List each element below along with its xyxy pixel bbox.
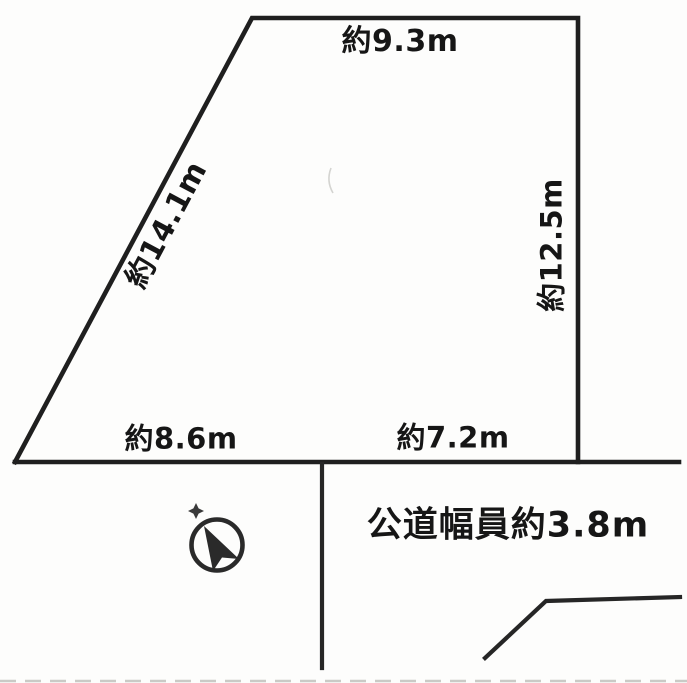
north-arrow-icon	[188, 503, 243, 571]
road-width-label: 公道幅員約3.8m	[367, 509, 649, 544]
plot-outline	[15, 18, 578, 462]
diagram-canvas	[0, 0, 687, 683]
north-star-marker	[188, 503, 204, 519]
dim-top-edge-label: 約9.3m	[342, 27, 459, 57]
dim-bottom-left-edge-label: 約8.6m	[124, 425, 237, 454]
opposite-road-edge	[485, 597, 680, 658]
scan-artifact	[329, 168, 333, 193]
dim-bottom-right-edge-label: 約7.2m	[396, 424, 509, 453]
plot-survey-diagram: 約9.3m 約14.1m 約12.5m 約8.6m 約7.2m 公道幅員約3.8…	[0, 0, 687, 683]
dim-right-edge-label: 約12.5m	[538, 178, 567, 312]
